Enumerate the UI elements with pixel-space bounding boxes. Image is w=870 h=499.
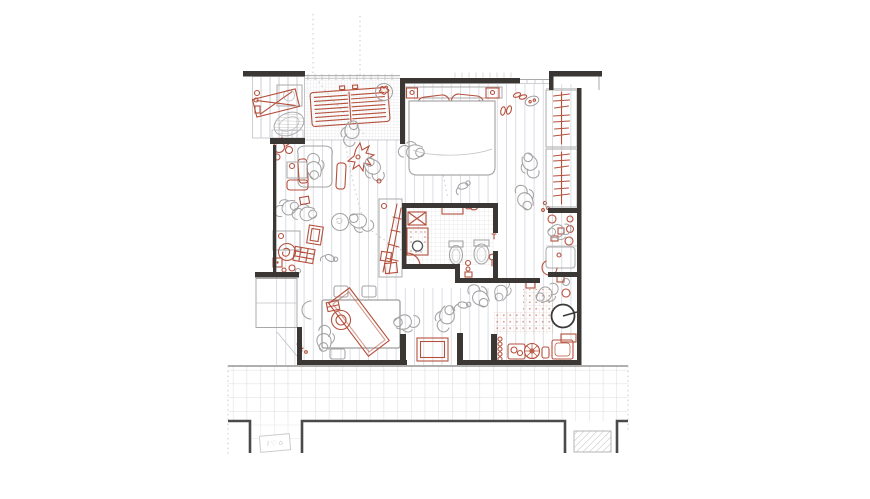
wall-laundry-bottom [270, 138, 305, 144]
street-sign-text: I ♡ ⌂ [267, 438, 284, 447]
wall-top-right [549, 71, 602, 77]
wall-bath-top [402, 203, 498, 208]
wall-bedroom-top [400, 78, 520, 84]
wall-bath-left [402, 203, 407, 269]
duvet [409, 101, 495, 175]
wall-right [577, 88, 582, 365]
wall-bottom-right [457, 360, 581, 365]
floor-plan-canvas: I ♡ ⌂ [0, 0, 870, 499]
window-bedroom [520, 80, 549, 84]
wall-top-left [243, 71, 305, 77]
bathroom [402, 203, 498, 288]
hatched-mat [574, 431, 611, 452]
wall-left [273, 145, 276, 273]
paving-grid [228, 366, 628, 421]
exterior-walkway: I ♡ ⌂ [228, 366, 628, 455]
wall-bottom-left [297, 360, 407, 365]
wall-bedroom-left [400, 78, 405, 144]
street-sign: I ♡ ⌂ [259, 434, 290, 453]
floor-plan-screenshot: I ♡ ⌂ [0, 0, 870, 499]
top-ticks [455, 73, 511, 78]
